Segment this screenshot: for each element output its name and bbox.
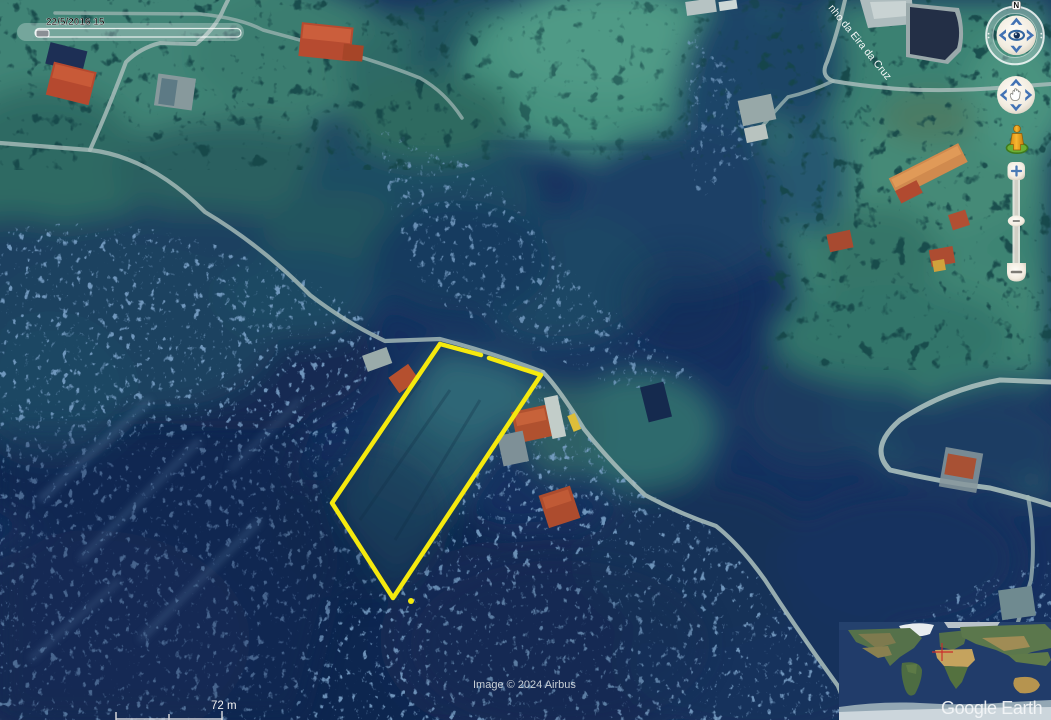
svg-text:72 m: 72 m [211,700,237,712]
svg-text:Google Earth: Google Earth [941,698,1042,718]
svg-text:N: N [1013,1,1019,10]
svg-text:Image © 2024 Airbus: Image © 2024 Airbus [473,679,576,691]
